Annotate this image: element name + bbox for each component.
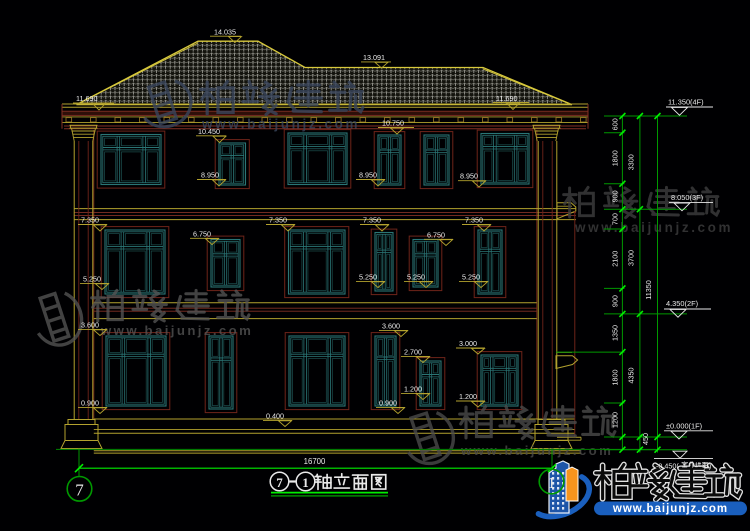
svg-text:3300: 3300 (627, 154, 636, 170)
svg-text:7.350: 7.350 (81, 216, 99, 225)
svg-text:11.690: 11.690 (496, 94, 517, 103)
svg-text:0.400: 0.400 (266, 412, 284, 421)
svg-text:7: 7 (276, 475, 283, 490)
svg-text:11350: 11350 (644, 280, 653, 299)
svg-text:0.900: 0.900 (379, 399, 397, 408)
svg-text:8.950: 8.950 (359, 171, 377, 180)
svg-text:7.350: 7.350 (363, 216, 381, 225)
svg-text:2.700: 2.700 (404, 348, 422, 357)
svg-text:5.250: 5.250 (462, 273, 480, 282)
svg-text:5.250: 5.250 (359, 273, 377, 282)
svg-text:6.750: 6.750 (193, 230, 211, 239)
svg-text:www.baijunjz.com: www.baijunjz.com (612, 503, 728, 515)
svg-text:1.200: 1.200 (459, 392, 477, 401)
svg-text:11.350(4F): 11.350(4F) (668, 98, 704, 107)
svg-text:1.200: 1.200 (404, 385, 422, 394)
svg-text:10.750: 10.750 (382, 119, 404, 128)
svg-text:8.950: 8.950 (460, 172, 478, 181)
svg-text:): ) (709, 462, 711, 471)
svg-text:13.091: 13.091 (363, 53, 385, 62)
svg-text:±0.000(1F): ±0.000(1F) (666, 422, 702, 431)
svg-text:600: 600 (611, 118, 620, 130)
svg-text:1: 1 (548, 475, 556, 492)
svg-text:14.035: 14.035 (214, 28, 236, 37)
svg-text:0.900: 0.900 (81, 399, 99, 408)
svg-text:900: 900 (611, 190, 620, 202)
svg-text:4.350(2F): 4.350(2F) (666, 299, 698, 308)
svg-text:900: 900 (611, 295, 620, 307)
svg-text:5.250: 5.250 (407, 273, 425, 282)
svg-text:700: 700 (611, 213, 620, 225)
svg-text:2100: 2100 (611, 251, 620, 267)
svg-text:-0.450(: -0.450( (656, 462, 679, 471)
svg-text:450: 450 (641, 433, 650, 445)
svg-text:7.350: 7.350 (269, 216, 287, 225)
svg-text:1: 1 (302, 475, 309, 490)
svg-text:1350: 1350 (611, 325, 620, 341)
svg-text:www.baijunjz.com: www.baijunjz.com (574, 220, 733, 235)
svg-text:www.baijunjz.com: www.baijunjz.com (100, 323, 253, 338)
svg-text:7.350: 7.350 (465, 216, 483, 225)
svg-text:1200: 1200 (611, 412, 620, 428)
svg-text:16700: 16700 (304, 457, 326, 466)
svg-text:10.450: 10.450 (198, 127, 220, 136)
svg-text:www.baijunjz.com: www.baijunjz.com (201, 117, 360, 132)
svg-text:1800: 1800 (611, 370, 620, 386)
svg-text:11.690: 11.690 (76, 94, 97, 103)
svg-text:3700: 3700 (627, 250, 636, 266)
svg-text:www.baijunjz.com: www.baijunjz.com (460, 443, 613, 458)
svg-text:1800: 1800 (611, 150, 620, 166)
svg-text:8.050(3F): 8.050(3F) (671, 193, 703, 202)
svg-text:3.600: 3.600 (382, 322, 400, 331)
svg-text:7: 7 (75, 481, 84, 500)
svg-text:5.250: 5.250 (83, 275, 101, 284)
svg-text:4350: 4350 (627, 368, 636, 384)
svg-text:3.000: 3.000 (459, 339, 477, 348)
svg-text:6.750: 6.750 (427, 231, 445, 240)
svg-text:3.600: 3.600 (81, 321, 99, 330)
svg-text:8.950: 8.950 (201, 171, 219, 180)
